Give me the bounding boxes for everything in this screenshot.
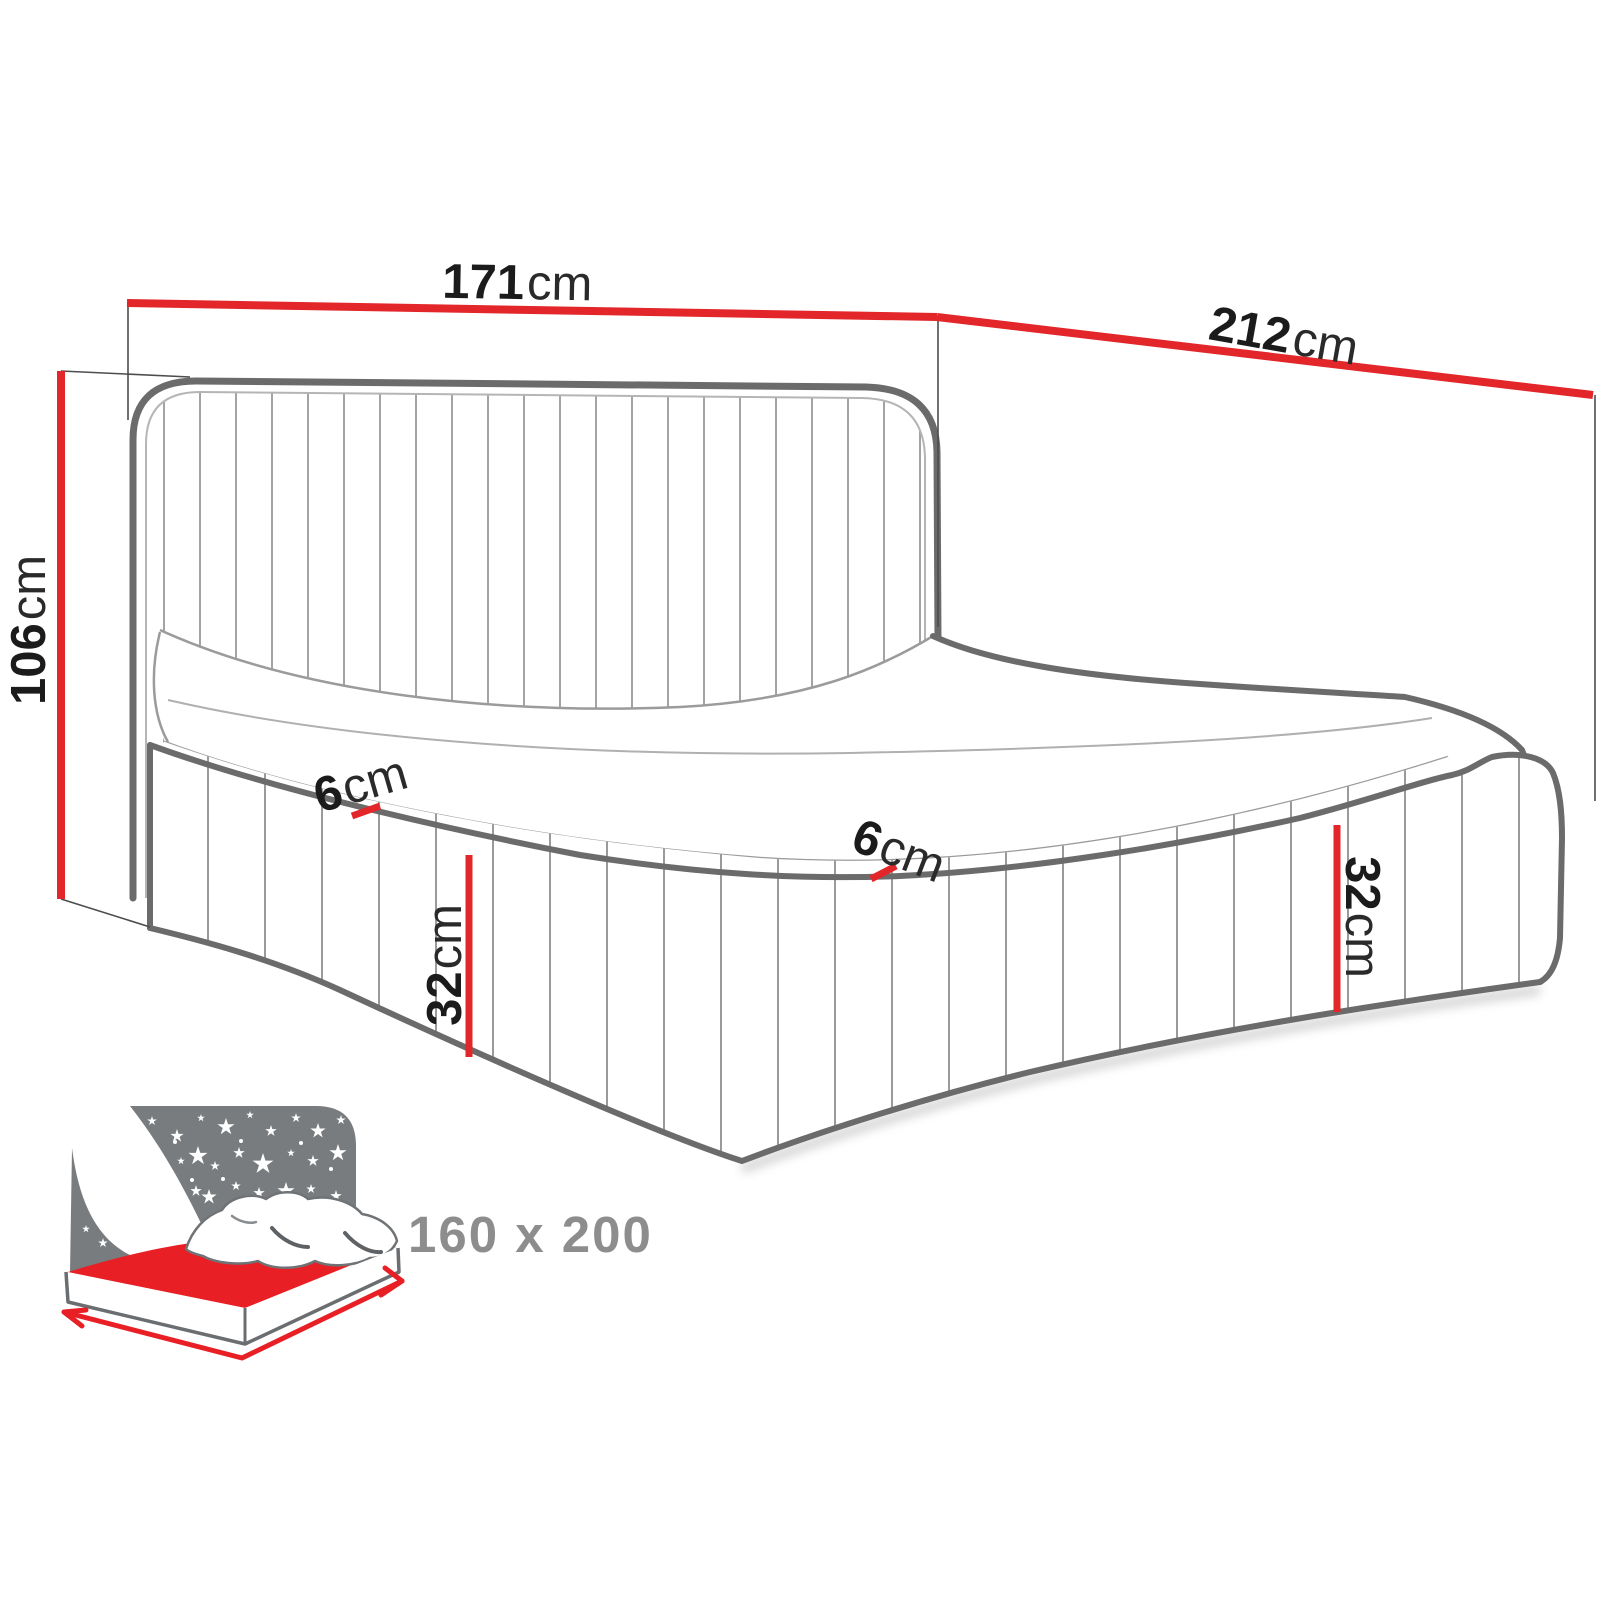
icon-headboard-wave bbox=[70, 1148, 145, 1272]
mattress-size-label: 160 x 200 bbox=[408, 1206, 653, 1263]
bed-dimension-diagram: 171cm 212cm 106cm 6cm 6cm 32cm 32cm bbox=[0, 0, 1600, 1600]
dim-width-label: 171cm bbox=[442, 255, 593, 312]
dim-frame-left-label: 32cm bbox=[418, 904, 472, 1026]
dim-frame-right-label: 32cm bbox=[1335, 856, 1389, 978]
dim-length-label: 212cm bbox=[1205, 297, 1362, 376]
bed-drawing bbox=[61, 303, 1595, 1180]
storage-bed-icon bbox=[64, 1106, 402, 1358]
dim-height-label: 106cm bbox=[2, 555, 56, 705]
